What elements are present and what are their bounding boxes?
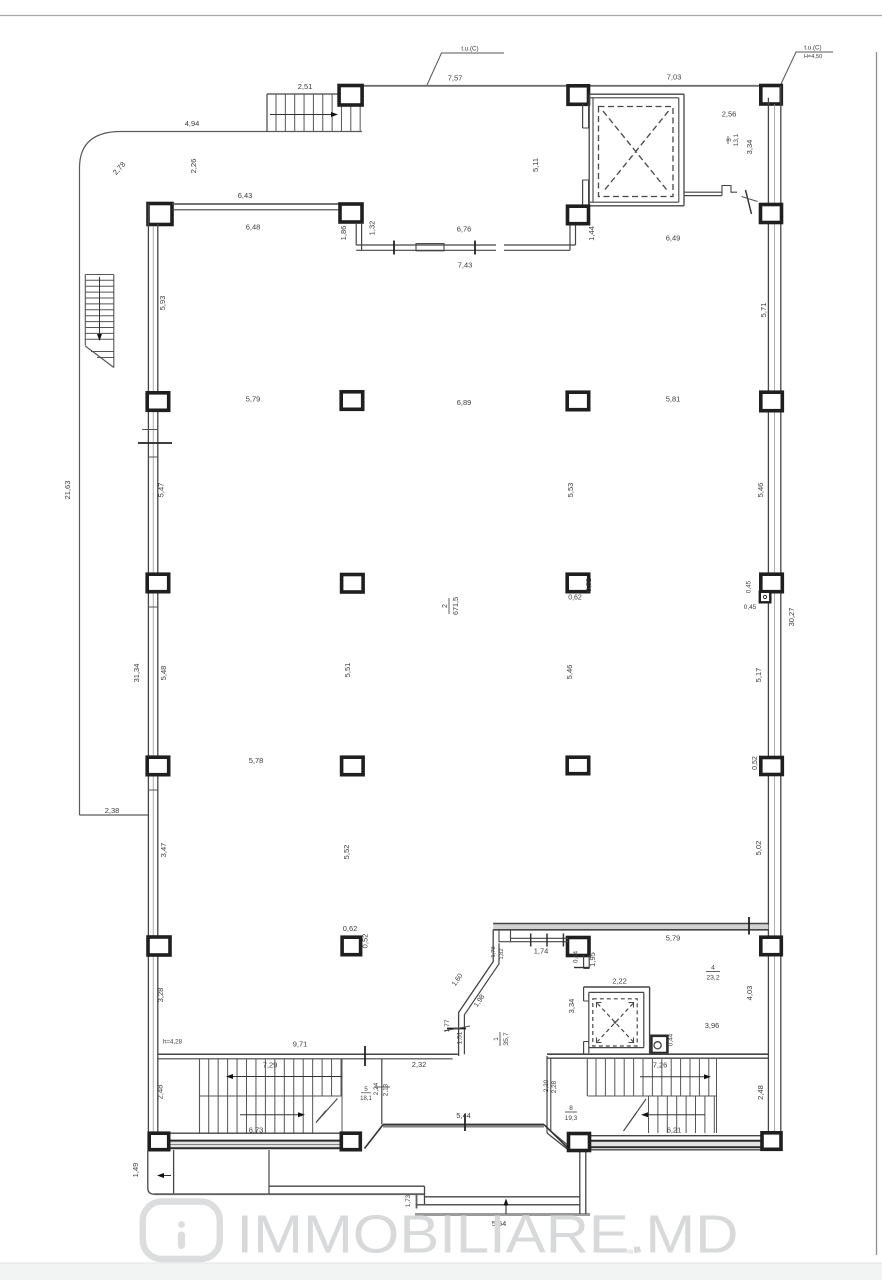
- svg-text:0,62: 0,62: [568, 595, 582, 602]
- svg-text:5,11: 5,11: [531, 158, 540, 172]
- svg-text:1,82: 1,82: [499, 948, 505, 959]
- svg-text:2: 2: [440, 604, 449, 608]
- svg-text:2,20: 2,20: [543, 1079, 550, 1092]
- svg-text:0,44: 0,44: [573, 950, 580, 963]
- svg-text:8: 8: [569, 1105, 573, 1112]
- svg-text:0,62: 0,62: [343, 924, 358, 933]
- svg-text:5,81: 5,81: [666, 395, 681, 404]
- svg-text:5,53: 5,53: [566, 483, 575, 498]
- svg-text:21,63: 21,63: [63, 481, 72, 500]
- svg-text:31,34: 31,34: [132, 664, 141, 683]
- svg-text:7,29: 7,29: [263, 1061, 278, 1070]
- svg-text:9,71: 9,71: [293, 1040, 308, 1049]
- svg-text:7,43: 7,43: [458, 261, 473, 270]
- svg-text:0,45: 0,45: [746, 580, 753, 593]
- svg-text:1,86: 1,86: [339, 226, 348, 241]
- svg-text:3,28: 3,28: [156, 988, 165, 1003]
- svg-text:1,44: 1,44: [587, 226, 596, 241]
- svg-text:2,48: 2,48: [756, 1085, 765, 1100]
- svg-text:1,32: 1,32: [368, 221, 377, 236]
- svg-text:7,03: 7,03: [667, 73, 682, 82]
- svg-text:1,49: 1,49: [131, 1163, 140, 1178]
- svg-text:h=4,28: h=4,28: [163, 1039, 183, 1046]
- svg-text:6,21: 6,21: [667, 1126, 682, 1135]
- svg-text:5,17: 5,17: [754, 668, 763, 683]
- svg-text:5,02: 5,02: [754, 841, 763, 856]
- svg-text:5,78: 5,78: [249, 756, 264, 765]
- svg-text:t.u.(C): t.u.(C): [461, 46, 478, 53]
- svg-text:5,52: 5,52: [342, 845, 351, 860]
- svg-text:2,13: 2,13: [383, 1083, 390, 1096]
- svg-text:30,27: 30,27: [787, 608, 796, 627]
- svg-text:t.u.(C): t.u.(C): [804, 45, 821, 52]
- svg-text:6,89: 6,89: [457, 398, 472, 407]
- svg-text:7,26: 7,26: [653, 1061, 668, 1070]
- svg-text:7,57: 7,57: [448, 74, 463, 83]
- svg-text:13,1: 13,1: [733, 133, 740, 146]
- svg-text:2,51: 2,51: [298, 82, 313, 91]
- svg-text:5,93: 5,93: [158, 296, 167, 311]
- svg-text:3: 3: [726, 138, 733, 142]
- svg-text:1,78: 1,78: [491, 946, 497, 957]
- svg-text:2,22: 2,22: [612, 977, 627, 986]
- svg-text:2,38: 2,38: [105, 806, 120, 815]
- svg-text:5,48: 5,48: [159, 666, 168, 681]
- svg-text:1,51: 1,51: [457, 1031, 464, 1044]
- svg-text:2,28: 2,28: [551, 1080, 558, 1093]
- svg-text:0,52: 0,52: [752, 756, 759, 770]
- svg-text:0,52: 0,52: [361, 934, 370, 949]
- svg-text:23,2: 23,2: [706, 975, 719, 982]
- svg-text:3,34: 3,34: [745, 140, 754, 155]
- svg-text:6,49: 6,49: [666, 234, 681, 243]
- svg-text:2,56: 2,56: [722, 110, 737, 119]
- svg-text:1,77: 1,77: [444, 1019, 451, 1032]
- svg-text:6,76: 6,76: [457, 225, 472, 234]
- svg-text:0,45: 0,45: [744, 604, 757, 611]
- svg-text:6,73: 6,73: [249, 1126, 264, 1135]
- svg-text:4: 4: [711, 965, 715, 972]
- svg-text:3,47: 3,47: [159, 843, 168, 858]
- svg-text:2,26: 2,26: [189, 159, 198, 174]
- svg-text:2,24: 2,24: [373, 1082, 380, 1095]
- svg-text:5,46: 5,46: [756, 483, 765, 498]
- svg-text:671,5: 671,5: [451, 597, 460, 615]
- svg-text:2,48: 2,48: [156, 1085, 165, 1100]
- svg-text:6,48: 6,48: [246, 223, 261, 232]
- svg-text:0,52: 0,52: [586, 578, 593, 592]
- svg-text:5,71: 5,71: [759, 303, 768, 318]
- svg-text:5,46: 5,46: [565, 665, 574, 680]
- svg-text:5,47: 5,47: [157, 483, 166, 498]
- svg-text:5,51: 5,51: [343, 663, 352, 678]
- svg-text:2,32: 2,32: [412, 1060, 427, 1069]
- svg-text:19,3: 19,3: [565, 1115, 578, 1122]
- svg-text:5,79: 5,79: [246, 395, 261, 404]
- svg-text:35,7: 35,7: [503, 1032, 510, 1045]
- svg-text:6,43: 6,43: [238, 191, 253, 200]
- svg-text:3,34: 3,34: [567, 999, 576, 1014]
- svg-text:IMMOBILIARE.MD: IMMOBILIARE.MD: [237, 1206, 739, 1265]
- svg-text:4,94: 4,94: [185, 119, 200, 128]
- svg-text:18,1: 18,1: [360, 1096, 372, 1102]
- svg-text:1,95: 1,95: [588, 952, 597, 967]
- svg-text:5,79: 5,79: [666, 934, 681, 943]
- svg-text:1: 1: [493, 1037, 500, 1041]
- svg-text:3,96: 3,96: [705, 1021, 720, 1030]
- svg-text:4,03: 4,03: [745, 986, 754, 1001]
- svg-text:0,44: 0,44: [668, 1033, 675, 1046]
- svg-text:1,74: 1,74: [534, 947, 549, 956]
- svg-text:H=4,50: H=4,50: [804, 54, 822, 60]
- svg-text:5,44: 5,44: [456, 1111, 471, 1120]
